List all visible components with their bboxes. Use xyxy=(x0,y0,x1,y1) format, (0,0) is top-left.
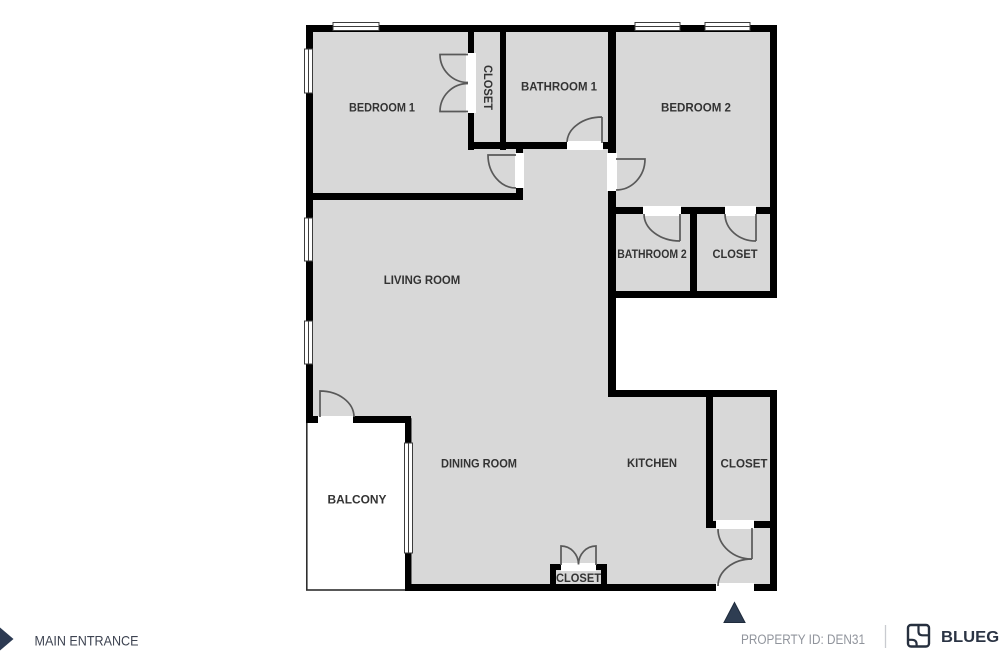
svg-text:CLOSET: CLOSET xyxy=(481,65,495,111)
svg-text:CLOSET: CLOSET xyxy=(713,247,759,261)
svg-text:LIVING ROOM: LIVING ROOM xyxy=(384,273,461,287)
svg-text:BEDROOM 1: BEDROOM 1 xyxy=(349,101,415,115)
svg-text:PROPERTY ID: DEN31: PROPERTY ID: DEN31 xyxy=(741,632,865,647)
svg-text:CLOSET: CLOSET xyxy=(556,571,602,585)
svg-text:CLOSET: CLOSET xyxy=(721,457,769,471)
svg-text:MAIN ENTRANCE: MAIN ENTRANCE xyxy=(35,633,139,649)
svg-text:BEDROOM 2: BEDROOM 2 xyxy=(661,101,731,115)
svg-text:KITCHEN: KITCHEN xyxy=(627,456,677,470)
svg-text:BALCONY: BALCONY xyxy=(328,493,387,507)
svg-text:BLUEGROUND: BLUEGROUND xyxy=(941,629,1000,646)
svg-text:BATHROOM 2: BATHROOM 2 xyxy=(617,247,687,261)
svg-text:DINING ROOM: DINING ROOM xyxy=(441,457,517,471)
svg-text:BATHROOM 1: BATHROOM 1 xyxy=(521,80,597,94)
